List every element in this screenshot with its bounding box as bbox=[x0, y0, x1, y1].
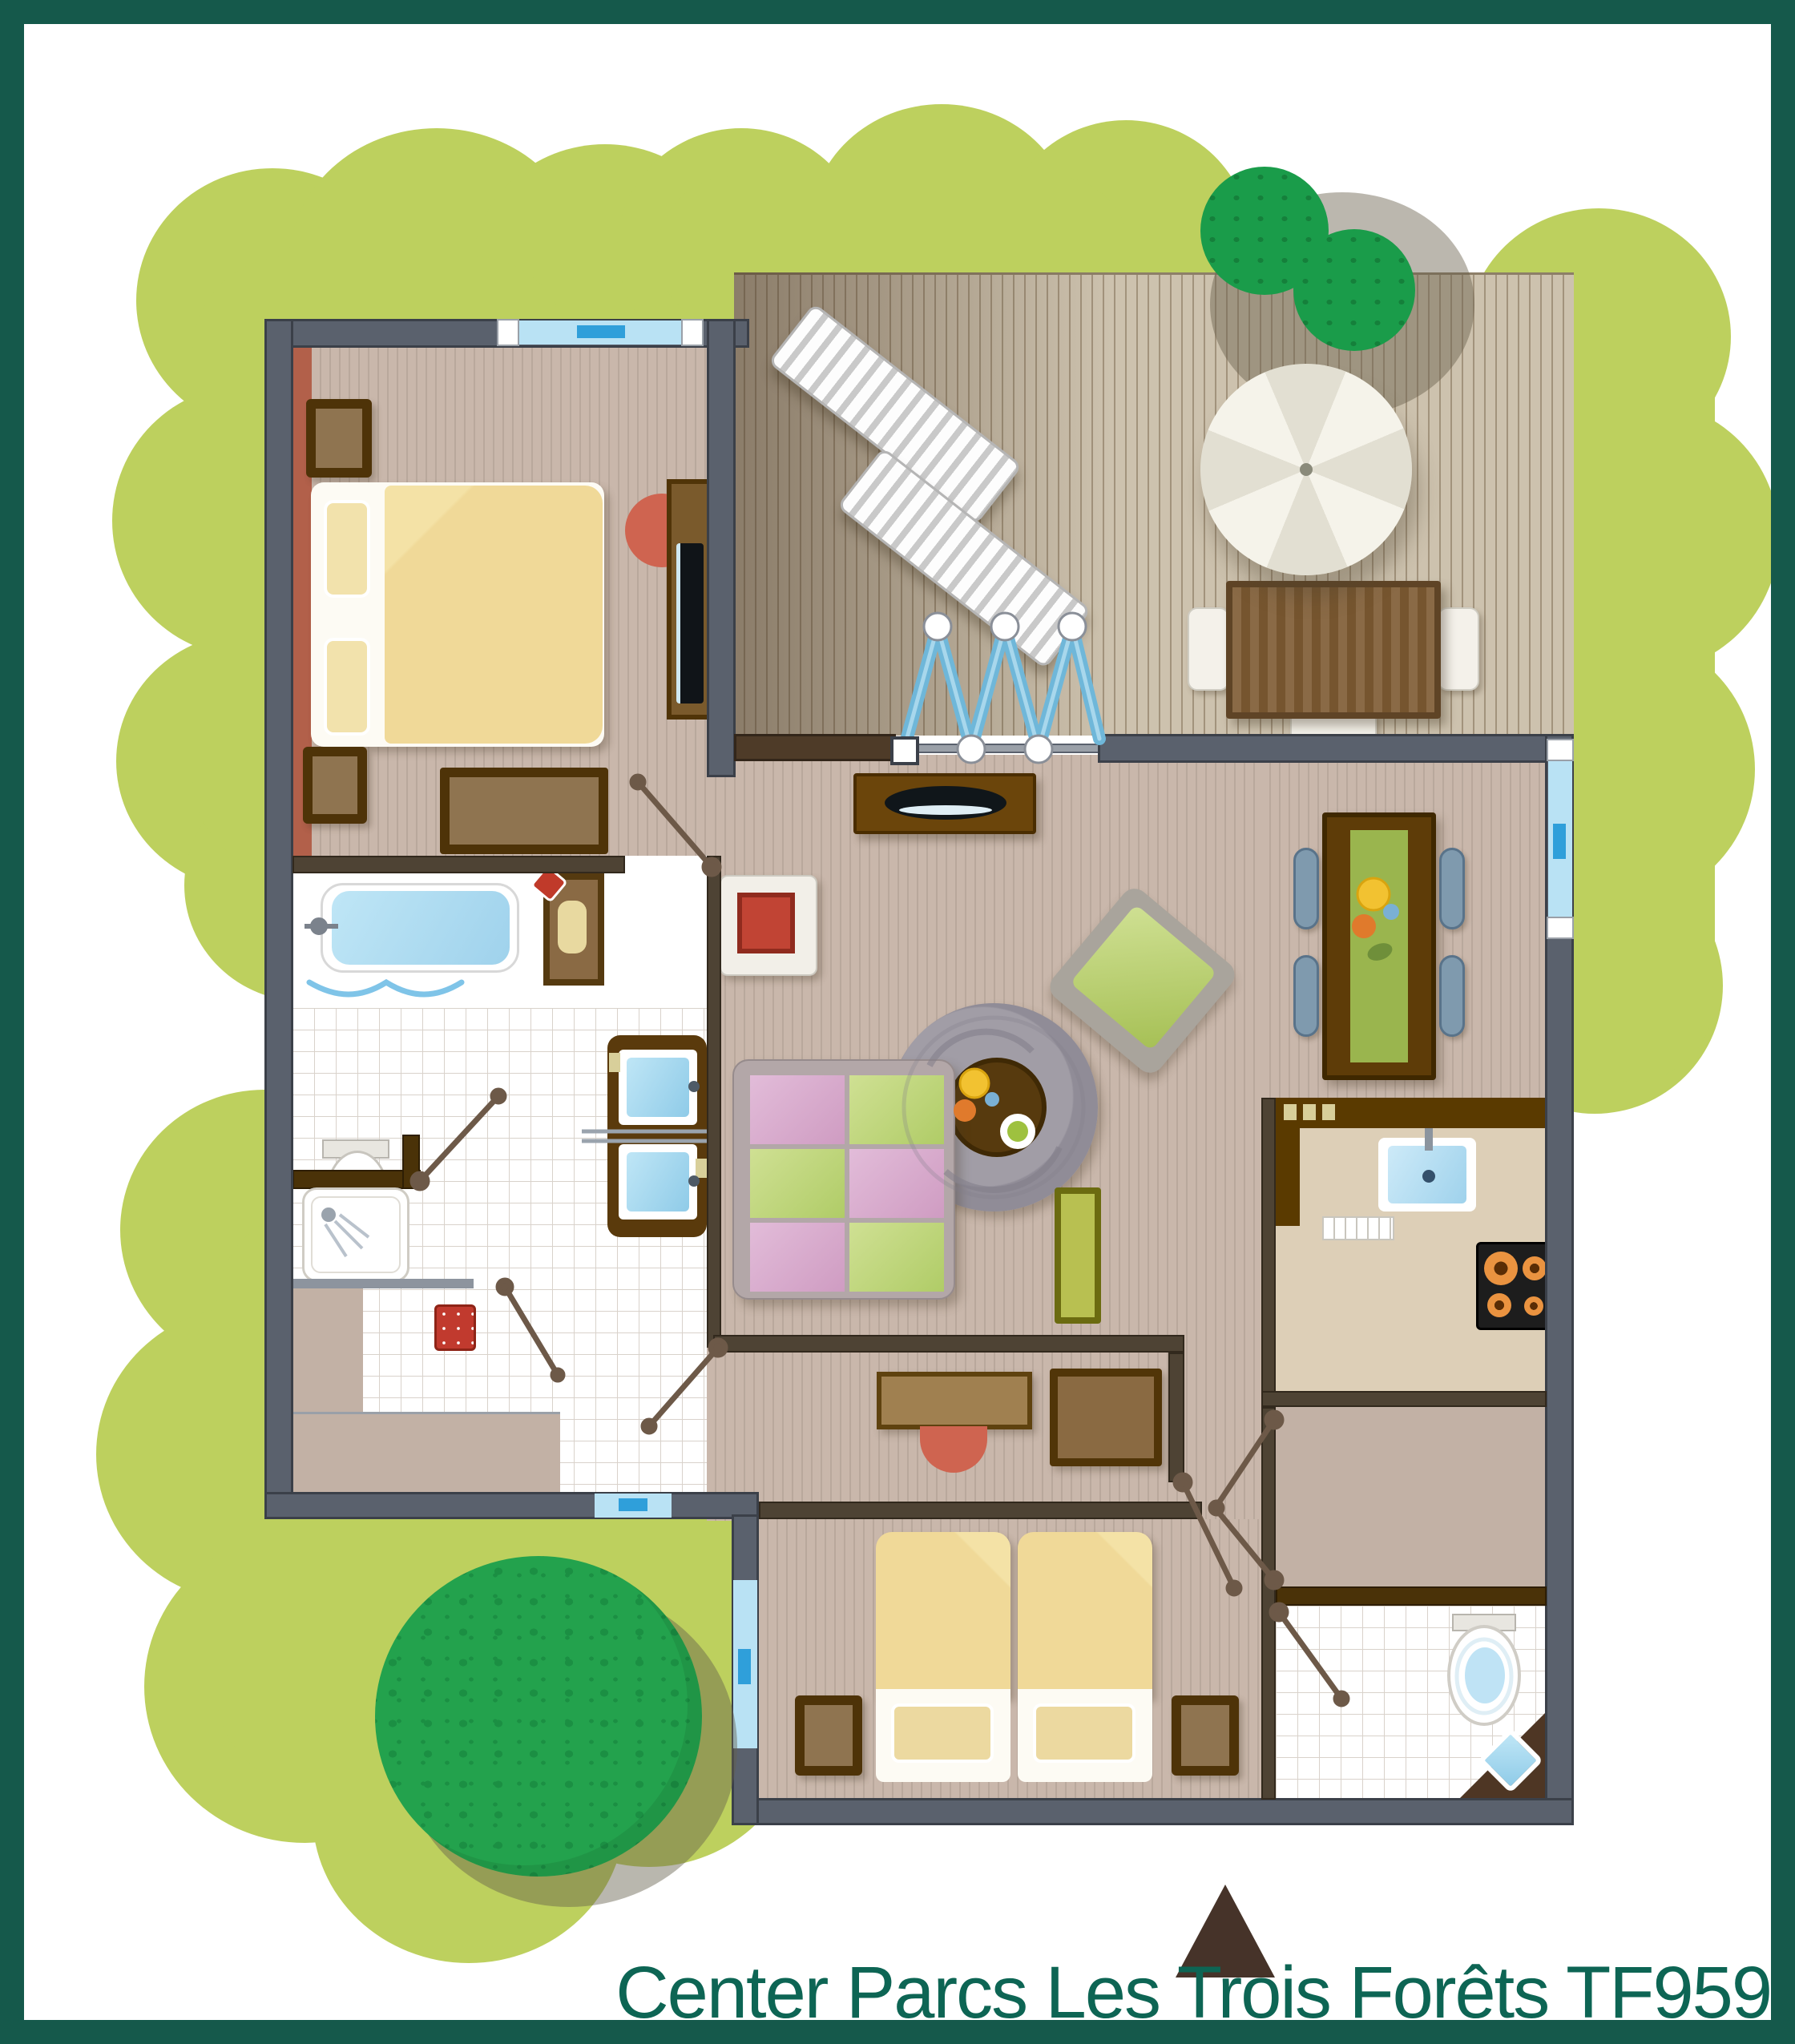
soap-dish bbox=[696, 1159, 707, 1178]
wall-storage-wc bbox=[1276, 1586, 1547, 1606]
wall-west bbox=[264, 319, 293, 1519]
double-bed-pillow bbox=[324, 500, 370, 598]
washbasin-bowl bbox=[627, 1058, 689, 1117]
toilet-nook-wall bbox=[292, 1170, 421, 1189]
window-cap bbox=[1547, 739, 1574, 761]
sofa-cushion bbox=[849, 1149, 944, 1218]
window-bathroom-south bbox=[595, 1494, 672, 1518]
wall-dining-north bbox=[1098, 734, 1574, 763]
wc-toilet-water bbox=[1465, 1647, 1505, 1703]
sideboard bbox=[853, 773, 1036, 834]
double-bed-pillow bbox=[324, 638, 370, 736]
wall-sofa-hall bbox=[713, 1335, 1184, 1353]
wall-bedroom-twin-north bbox=[759, 1502, 1202, 1519]
sofa-cushion bbox=[750, 1149, 845, 1218]
twin-bed-pillow bbox=[1033, 1703, 1135, 1763]
twin-bed-pillow bbox=[891, 1703, 994, 1763]
dining-chair bbox=[1439, 848, 1465, 929]
twin-bed-duvet bbox=[1018, 1532, 1152, 1697]
sofa-cushion bbox=[750, 1223, 845, 1292]
double-bed-duvet bbox=[385, 486, 603, 744]
window-bedroom-north bbox=[497, 321, 704, 345]
cooktop-burner bbox=[1524, 1296, 1543, 1316]
wall-hall-vert bbox=[1168, 1353, 1184, 1482]
dish-rack bbox=[1322, 1216, 1394, 1240]
cooktop-burner bbox=[1487, 1293, 1511, 1317]
garden-chair bbox=[1438, 607, 1479, 691]
dining-chair bbox=[1293, 955, 1319, 1037]
nightstand bbox=[303, 747, 367, 824]
window-dining-east bbox=[1548, 760, 1572, 918]
wall-kitchen-west bbox=[1261, 1098, 1276, 1393]
nightstand bbox=[306, 399, 372, 478]
tv-icon bbox=[676, 543, 704, 704]
kitchen-sink-bowl bbox=[1388, 1146, 1466, 1203]
wall-wc-west bbox=[1261, 1407, 1276, 1800]
garden-chair bbox=[1188, 607, 1229, 691]
terrace-shrub-icon bbox=[1293, 229, 1415, 351]
soap-dish bbox=[609, 1053, 620, 1072]
dresser bbox=[1050, 1369, 1162, 1466]
dining-chair bbox=[1439, 955, 1465, 1037]
plan-title: Center Parcs Les Trois Forêts TF959 bbox=[329, 1951, 1771, 2044]
cooktop-burner bbox=[1484, 1252, 1518, 1285]
desk bbox=[877, 1372, 1032, 1429]
floor-plan-canvas: Center Parcs Les Trois Forêts TF959 bbox=[0, 0, 1795, 2044]
sofa-cushion bbox=[849, 1075, 944, 1144]
wall-bathroom-east bbox=[707, 856, 721, 1348]
wall-south-bathroom bbox=[264, 1492, 759, 1519]
wardrobe bbox=[440, 768, 608, 854]
bathtub-water bbox=[332, 891, 510, 965]
kitchen-knobs bbox=[1284, 1104, 1340, 1120]
fireplace-firebox bbox=[737, 893, 795, 953]
cooktop-burner bbox=[1523, 1256, 1547, 1280]
cooktop bbox=[1476, 1242, 1550, 1330]
table-runner bbox=[1350, 830, 1408, 1062]
nightstand bbox=[1172, 1695, 1239, 1776]
terrace-door-rail bbox=[894, 744, 1099, 753]
side-table bbox=[1055, 1187, 1101, 1324]
toilet-nook-wall bbox=[402, 1135, 420, 1189]
washbasin-bowl bbox=[627, 1152, 689, 1211]
shower-edge bbox=[292, 1279, 474, 1288]
window-cap bbox=[1547, 917, 1574, 939]
wall-bedroom-east bbox=[707, 319, 736, 777]
twin-bed-duvet bbox=[876, 1532, 1010, 1697]
tree-icon bbox=[375, 1556, 702, 1877]
laundry-box bbox=[434, 1304, 476, 1351]
wall-bedroom-bathroom bbox=[292, 856, 625, 873]
coffee-table bbox=[947, 1058, 1047, 1157]
sofa-cushion bbox=[750, 1075, 845, 1144]
dining-chair bbox=[1293, 848, 1319, 929]
garden-table bbox=[1226, 581, 1441, 719]
bathroom-dressing-floor bbox=[292, 1412, 560, 1492]
window-bedroom-twin-west bbox=[733, 1580, 757, 1748]
wall-south bbox=[734, 1798, 1574, 1825]
wall-kitchen-storage bbox=[1261, 1391, 1547, 1407]
storage-floor bbox=[1276, 1407, 1547, 1588]
sofa-cushion bbox=[849, 1223, 944, 1292]
wall-terrace-brown bbox=[734, 734, 896, 761]
kitchen-counter-left bbox=[1276, 1128, 1300, 1226]
parasol-pole bbox=[1300, 463, 1313, 476]
nightstand bbox=[795, 1695, 862, 1776]
shower bbox=[302, 1187, 409, 1282]
